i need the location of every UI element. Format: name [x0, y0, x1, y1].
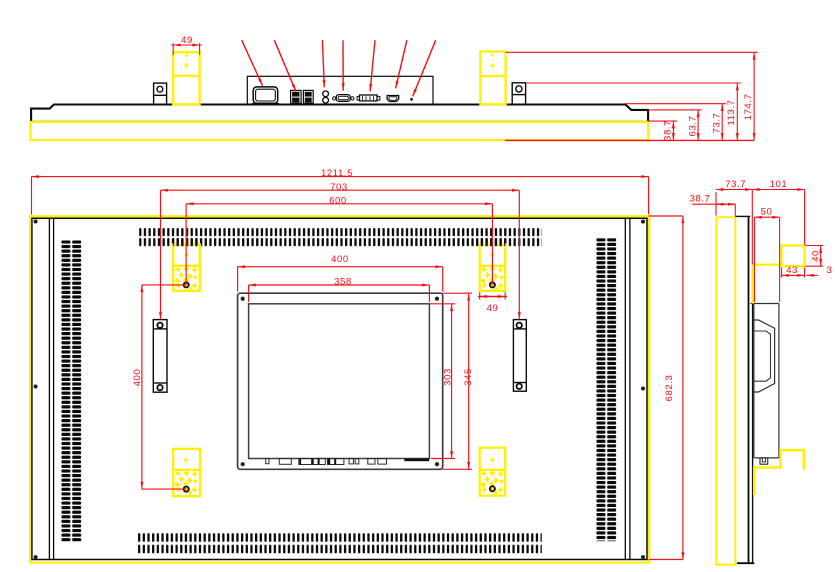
svg-text:40: 40: [811, 250, 822, 262]
svg-text:682.3: 682.3: [664, 375, 675, 402]
svg-text:50: 50: [761, 207, 773, 218]
svg-text:43: 43: [786, 265, 798, 276]
svg-text:703: 703: [330, 182, 348, 193]
svg-text:73.7: 73.7: [711, 113, 722, 134]
svg-text:38.7: 38.7: [690, 194, 711, 205]
svg-text:3: 3: [827, 265, 833, 276]
svg-text:49: 49: [487, 303, 499, 314]
svg-text:1211.5: 1211.5: [321, 168, 353, 179]
svg-text:174.7: 174.7: [743, 94, 754, 121]
svg-text:63.7: 63.7: [687, 116, 698, 137]
svg-text:101: 101: [770, 179, 788, 190]
svg-text:400: 400: [331, 254, 349, 265]
svg-text:345: 345: [463, 368, 474, 386]
svg-text:73.7: 73.7: [725, 179, 746, 190]
svg-text:358: 358: [334, 276, 352, 287]
svg-text:303: 303: [442, 368, 453, 386]
svg-text:600: 600: [329, 195, 347, 206]
svg-text:38.7: 38.7: [662, 120, 673, 141]
svg-text:400: 400: [132, 369, 143, 387]
svg-text:113.7: 113.7: [726, 99, 737, 125]
svg-text:49: 49: [181, 35, 193, 46]
